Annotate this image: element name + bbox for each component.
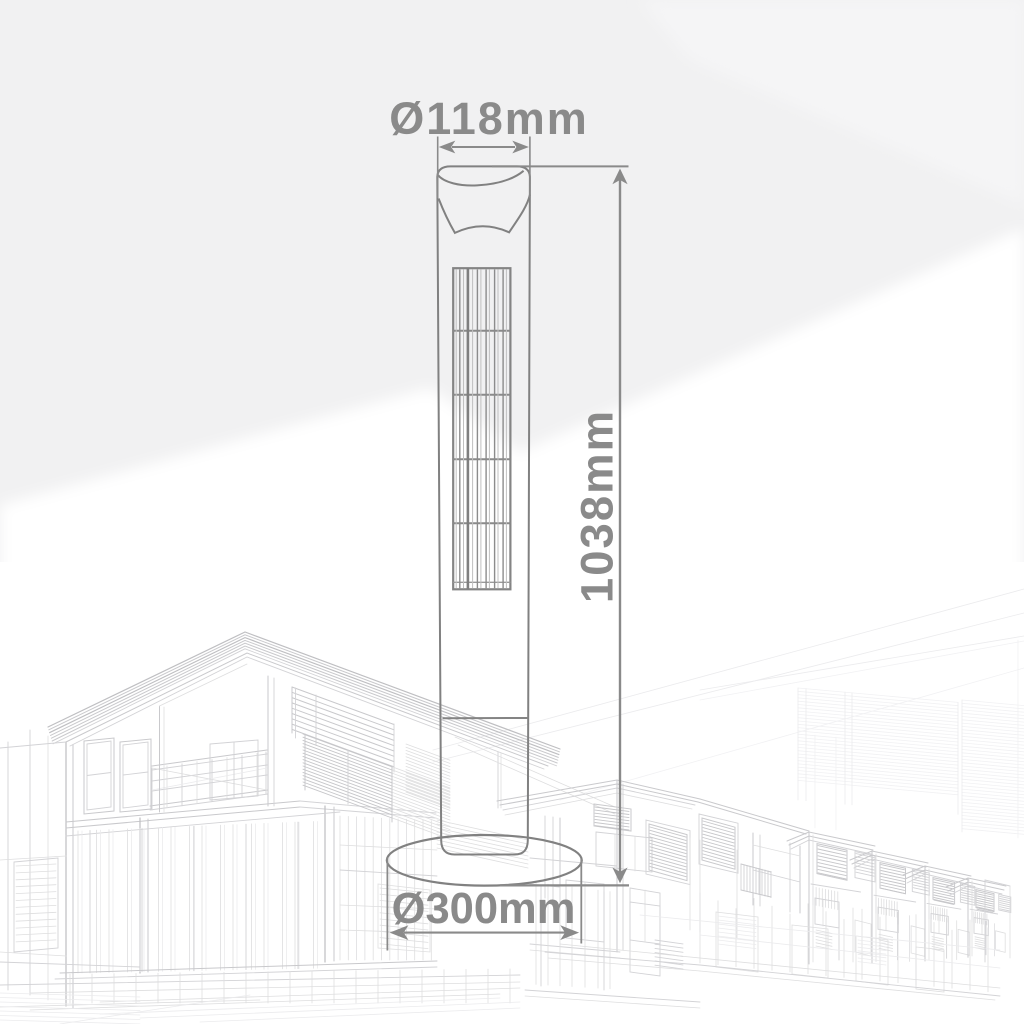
svg-text:Ø300mm: Ø300mm — [392, 885, 576, 933]
svg-text:Ø118mm: Ø118mm — [389, 93, 589, 144]
svg-text:1038mm: 1038mm — [572, 409, 623, 603]
